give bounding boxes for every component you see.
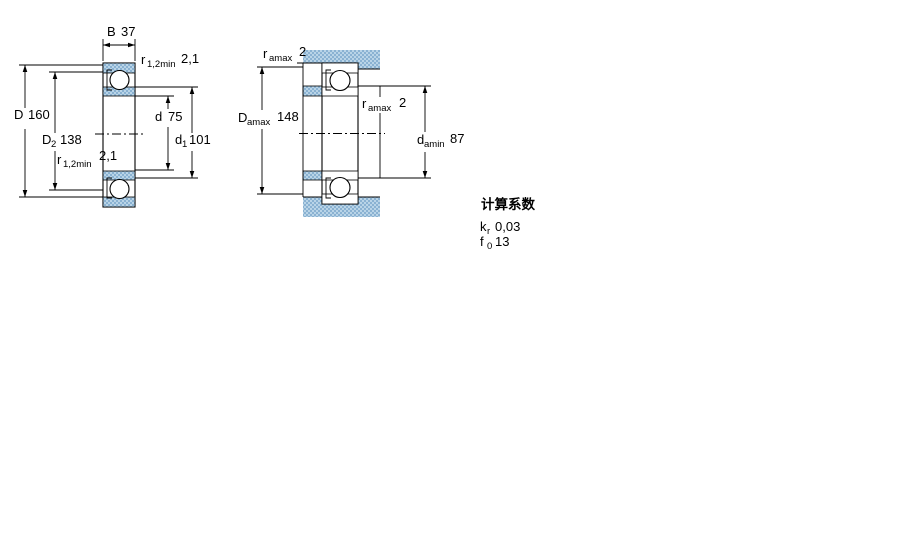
dim-label-D2: D 2 138 xyxy=(42,131,82,151)
arrowhead-icon xyxy=(260,67,265,74)
dim-symbol: D xyxy=(42,132,51,147)
arrowhead-icon xyxy=(190,87,195,94)
factor-value: 13 xyxy=(495,234,509,249)
dim-subscript: 2 xyxy=(51,139,56,150)
dim-subscript: amin xyxy=(424,139,445,150)
dim-value: 101 xyxy=(189,132,211,147)
dim-value: 148 xyxy=(277,109,299,124)
arrowhead-icon xyxy=(190,171,195,178)
dim-label-Damax: D amax 148 xyxy=(238,109,299,129)
shaft-shoulder-hatch-top xyxy=(303,86,322,96)
dim-subscript: 1 xyxy=(182,139,187,150)
factor-value: 0,03 xyxy=(495,219,520,234)
calculation-factors-block: 计算系数 k r 0,03 f 0 13 xyxy=(480,196,535,253)
arrowhead-icon xyxy=(128,43,135,48)
housing-hatch-top xyxy=(303,50,380,63)
inner-ring-bottom xyxy=(103,171,135,180)
dim-label-r12-top: r 1,2min 2,1 xyxy=(141,51,199,71)
dim-symbol: D xyxy=(14,107,23,122)
factor-symbol: k xyxy=(480,219,487,234)
right-mounting-cross-section: r amax 2 D amax 148 r amax 2 xyxy=(238,44,464,217)
dim-value: 2 xyxy=(299,44,306,59)
calculation-factors-title: 计算系数 xyxy=(481,196,535,212)
bearing-diagram-svg: B 37 r 1,2min 2,1 D 160 xyxy=(0,0,900,560)
dim-value: 138 xyxy=(60,132,82,147)
dim-symbol: r xyxy=(57,152,62,167)
dim-label-ramax-top: r amax 2 xyxy=(263,44,306,65)
left-bearing-cross-section: B 37 r 1,2min 2,1 D 160 xyxy=(14,23,211,207)
ball-icon xyxy=(110,180,129,199)
dim-label-d: d 75 xyxy=(155,108,182,125)
dim-symbol: D xyxy=(238,110,247,125)
housing-shoulder-hatch xyxy=(358,63,380,69)
dim-label-D: D 160 xyxy=(14,106,50,123)
dim-subscript: 1,2min xyxy=(63,159,92,170)
factor-symbol: f xyxy=(480,234,484,249)
arrowhead-icon xyxy=(423,86,428,93)
dim-value: 160 xyxy=(28,107,50,122)
dim-subscript: amax xyxy=(247,117,270,128)
dim-subscript: amax xyxy=(368,103,391,114)
dim-symbol: r xyxy=(141,52,146,67)
dim-subscript: 1,2min xyxy=(147,59,176,70)
dim-value: 87 xyxy=(450,131,464,146)
arrowhead-icon xyxy=(423,171,428,178)
dim-label-ramax-mid: r amax 2 xyxy=(362,95,406,115)
dim-symbol: d xyxy=(155,109,162,124)
dim-subscript: amax xyxy=(269,53,292,64)
dim-value: 2,1 xyxy=(181,51,199,66)
dim-value: 75 xyxy=(168,109,182,124)
arrowhead-icon xyxy=(53,72,58,79)
dim-value: 2 xyxy=(399,95,406,110)
arrowhead-icon xyxy=(260,187,265,194)
factor-subscript: 0 xyxy=(487,241,492,252)
ball-icon xyxy=(110,71,129,90)
arrowhead-icon xyxy=(23,65,28,72)
dim-symbol: r xyxy=(362,96,367,111)
ball-icon xyxy=(330,71,350,91)
arrowhead-icon xyxy=(23,190,28,197)
shaft-shoulder-hatch-bottom xyxy=(303,171,322,180)
ball-icon xyxy=(330,178,350,198)
bearing-drawing-page: B 37 r 1,2min 2,1 D 160 xyxy=(0,0,900,560)
factor-f0: f 0 13 xyxy=(480,233,509,253)
dim-label-B: B 37 xyxy=(107,23,135,40)
dim-label-damin: d amin 87 xyxy=(417,131,464,151)
arrowhead-icon xyxy=(53,183,58,190)
dim-symbol: r xyxy=(263,46,268,61)
arrowhead-icon xyxy=(166,96,171,103)
dim-value: 37 xyxy=(121,24,135,39)
dim-label-d1: d 1 101 xyxy=(175,131,211,151)
arrowhead-icon xyxy=(166,163,171,170)
dim-symbol: B xyxy=(107,24,116,39)
arrowhead-icon xyxy=(103,43,110,48)
dim-value: 2,1 xyxy=(99,148,117,163)
